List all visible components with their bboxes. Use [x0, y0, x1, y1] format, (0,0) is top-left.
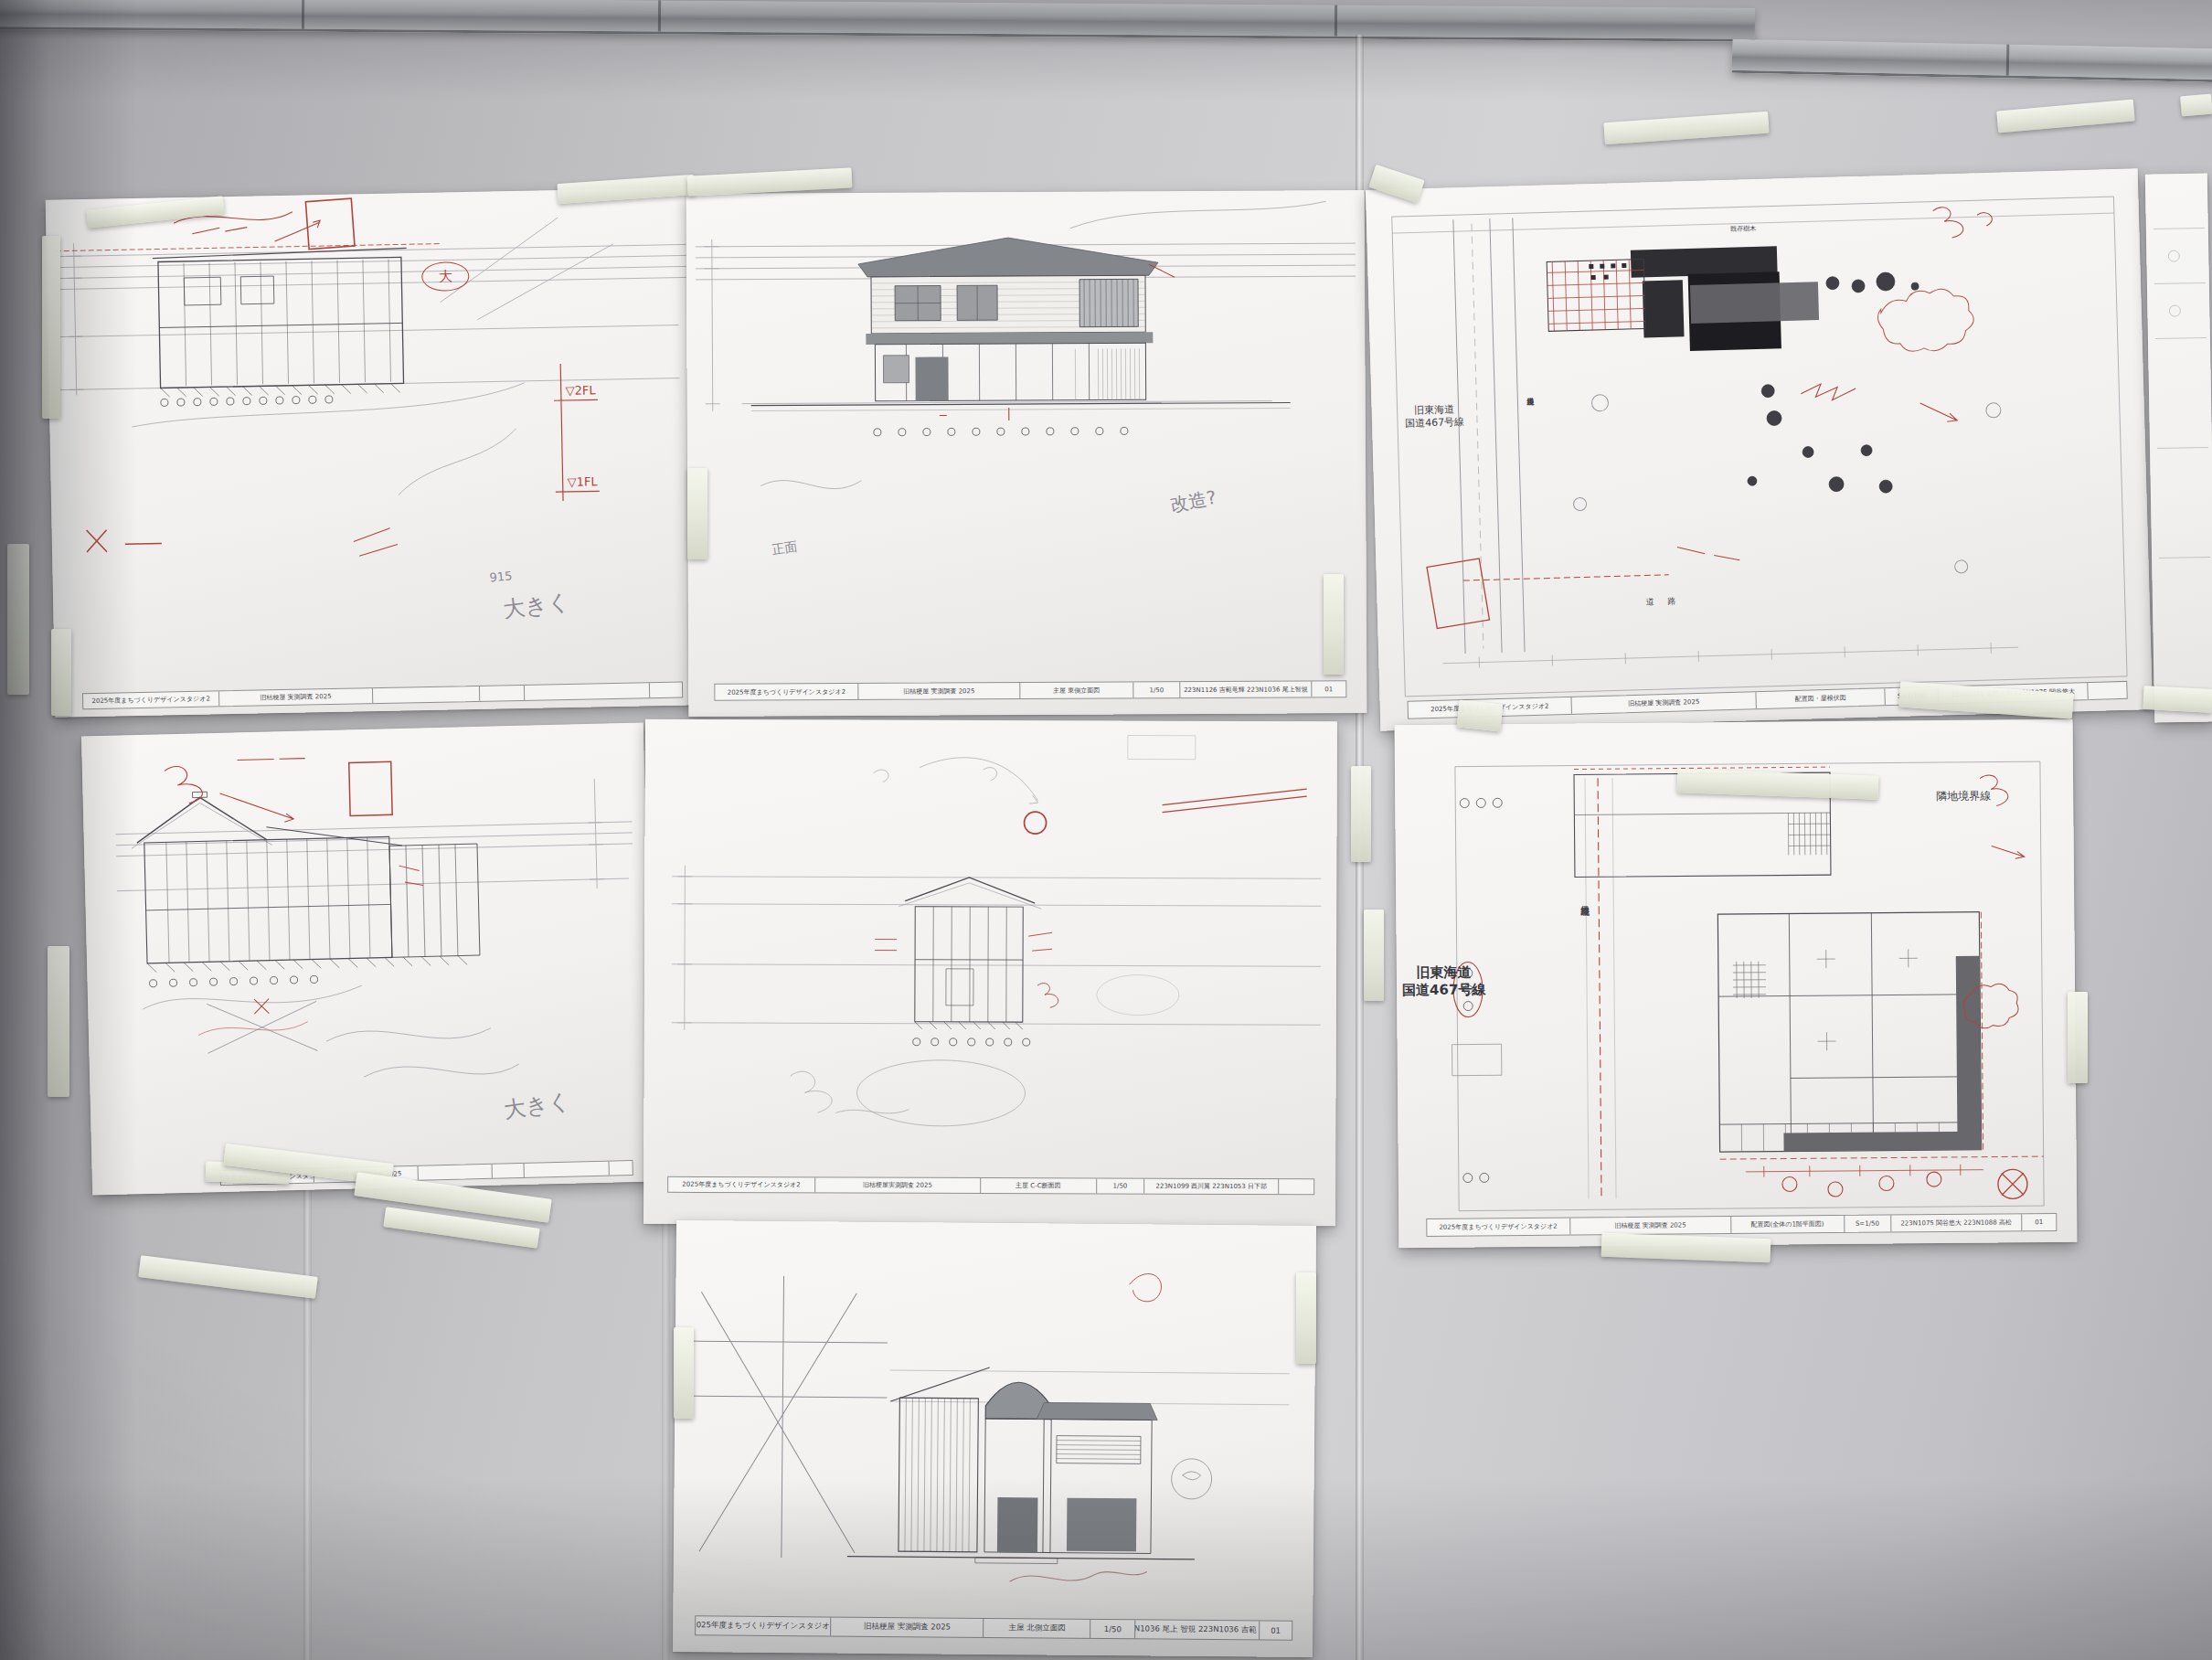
title-sheet-no [1278, 1179, 1313, 1194]
title-studio: 2025年度まちづくりデザインスタジオ2 [668, 1177, 814, 1193]
wall-panel-seam [303, 1188, 312, 1660]
aluminum-rail-top-right [1732, 39, 2212, 82]
sheet-cc-section: 2025年度まちづくりデザインスタジオ2 旧桔梗屋実測調査 2025 主屋 C-… [643, 719, 1337, 1227]
title-scale: 1/50 [1090, 1620, 1135, 1638]
tape-strip [1601, 1233, 1771, 1262]
label-old-tokaido: 旧東海道 国道467号線 [1404, 403, 1464, 430]
sheet-right-edge-partial [2145, 173, 2212, 722]
title-subject [418, 1165, 492, 1180]
tape-strip [1364, 910, 1384, 1001]
label-road: 道 路 [1645, 596, 1681, 607]
tape-strip [42, 236, 60, 419]
title-subject [372, 686, 480, 703]
partial-sheet-linework [2145, 173, 2212, 722]
title-sheet-no: 01 [2021, 1214, 2056, 1230]
title-subject: 主屋 東側立面図 [1019, 682, 1133, 698]
title-project: 旧桔梗屋 実測調査 2025 [857, 683, 1019, 699]
title-authors: 223N1099 西川翼 223N1053 日下部 [1143, 1179, 1278, 1195]
east-elevation-linework [686, 190, 1367, 717]
tape-strip [2180, 94, 2212, 117]
title-authors [524, 683, 649, 700]
title-authors: 223N1075 関谷悠大 223N1088 高松 [1890, 1214, 2022, 1231]
label-old-tokaido-2-line1: 旧東海道 [1402, 963, 1485, 982]
title-authors: 223N1126 吉範竜輝 223N1036 尾上智規 [1179, 681, 1311, 697]
title-scale: S=1/50 [1844, 1216, 1890, 1232]
red-note-2fl: ▽2FL [566, 383, 596, 398]
title-subject: 配置図(全体の1階平面図) [1730, 1216, 1844, 1233]
sheet-top-left-section: ▽2FL ▽1FL 大 915 大きく 2025年度まちづくりデザインスタジオ2… [46, 187, 705, 718]
pencil-note-915: 915 [489, 569, 513, 584]
title-authors: 223N1036 尾上 智規 223N1036 吉範 竜輝 [1134, 1620, 1259, 1639]
red-note-1fl: ▽1FL [568, 474, 598, 489]
label-route467: 国道467号線 [1405, 416, 1464, 431]
sheet-north-elevation: 2025年度まちづくりデザインスタジオ2 旧桔梗屋 実測調査 2025 主屋 北… [673, 1220, 1316, 1657]
label-existing-trees: 既存樹木 [1730, 225, 1756, 234]
sheet-east-elevation: 正面 改造? 2025年度まちづくりデザインスタジオ2 旧桔梗屋 実測調査 20… [686, 190, 1367, 717]
tape-strip [1996, 100, 2135, 133]
photo-of-drawing-wall: ▽2FL ▽1FL 大 915 大きく 2025年度まちづくりデザインスタジオ2… [0, 0, 2212, 1660]
tape-strip [1457, 700, 1504, 732]
title-studio: 2025年度まちづくりデザインスタジオ2 [1427, 1218, 1569, 1236]
title-authors [523, 1162, 609, 1177]
sheet-middle-left-section: 大きく 2025年度まちづくりデザインスタジオ2 旧桔梗屋 実測調査 2025 [81, 723, 654, 1196]
title-sheet-no: 01 [1311, 681, 1345, 697]
label-adjacent-boundary: 隣地境界線 [1936, 790, 1991, 804]
tape-strip [51, 629, 71, 716]
section-drawing-linework [46, 187, 705, 718]
title-project: 旧桔梗屋 実測調査 2025 [218, 688, 372, 706]
title-sheet-no [649, 683, 683, 698]
tape-strip [2143, 686, 2212, 713]
title-sheet-no [608, 1161, 632, 1176]
tape-strip [1351, 766, 1371, 862]
title-studio: 2025年度まちづくりデザインスタジオ2 [696, 1616, 830, 1635]
title-subject: 主屋 C-C断面図 [980, 1178, 1096, 1193]
title-block-east-elevation: 2025年度まちづくりデザインスタジオ2 旧桔梗屋 実測調査 2025 主屋 東… [714, 680, 1346, 701]
sheet-site-roof-plan: 旧東海道 国道467号線 道路境界線 既存樹木 道 路 2025年度まちづくりデ… [1366, 168, 2153, 730]
tape-strip [7, 544, 29, 695]
title-subject: 配置図・屋根伏図 [1755, 688, 1885, 708]
title-sheet-no [2087, 682, 2126, 699]
north-elevation-linework [673, 1220, 1316, 1657]
tape-strip [1296, 1272, 1316, 1364]
label-old-tokaido-2: 旧東海道 国道467号線 [1402, 963, 1486, 998]
title-studio: 2025年度まちづくりデザインスタジオ2 [715, 684, 857, 700]
title-scale [492, 1164, 524, 1178]
tape-strip [2068, 992, 2088, 1083]
title-project: 旧桔梗屋実測調査 2025 [814, 1177, 980, 1193]
label-route467-2: 国道467号線 [1402, 981, 1485, 999]
tape-strip [1324, 574, 1344, 675]
aluminum-rail-top [0, 0, 1755, 42]
title-sheet-no: 01 [1259, 1622, 1292, 1640]
tape-strip [138, 1255, 317, 1299]
middle-left-section-linework [81, 723, 654, 1196]
title-scale [479, 686, 524, 701]
sheet-site-floor-plan: 隣地境界線 道路境界線 旧東海道 国道467号線 2025年度まちづくりデザイン… [1395, 719, 2078, 1248]
tape-strip [48, 946, 69, 1097]
site-roof-plan-linework [1366, 168, 2153, 730]
title-project: 旧桔梗屋 実測調査 2025 [1569, 1217, 1730, 1235]
title-block-cc-section: 2025年度まちづくりデザインスタジオ2 旧桔梗屋実測調査 2025 主屋 C-… [667, 1176, 1314, 1195]
tape-strip [687, 468, 707, 559]
title-subject: 主屋 北側立面図 [983, 1619, 1090, 1638]
red-note-dai: 大 [439, 268, 452, 285]
title-project: 旧桔梗屋 実測調査 2025 [830, 1617, 983, 1636]
tape-strip [687, 167, 853, 196]
title-scale: 1/50 [1096, 1178, 1143, 1193]
cc-section-linework [643, 719, 1337, 1227]
wall-panel-seam [662, 1188, 670, 1660]
title-studio: 2025年度まちづくりデザインスタジオ2 [83, 691, 218, 708]
title-scale: 1/50 [1133, 682, 1179, 697]
tape-strip [674, 1327, 694, 1419]
tape-strip [1603, 112, 1769, 144]
